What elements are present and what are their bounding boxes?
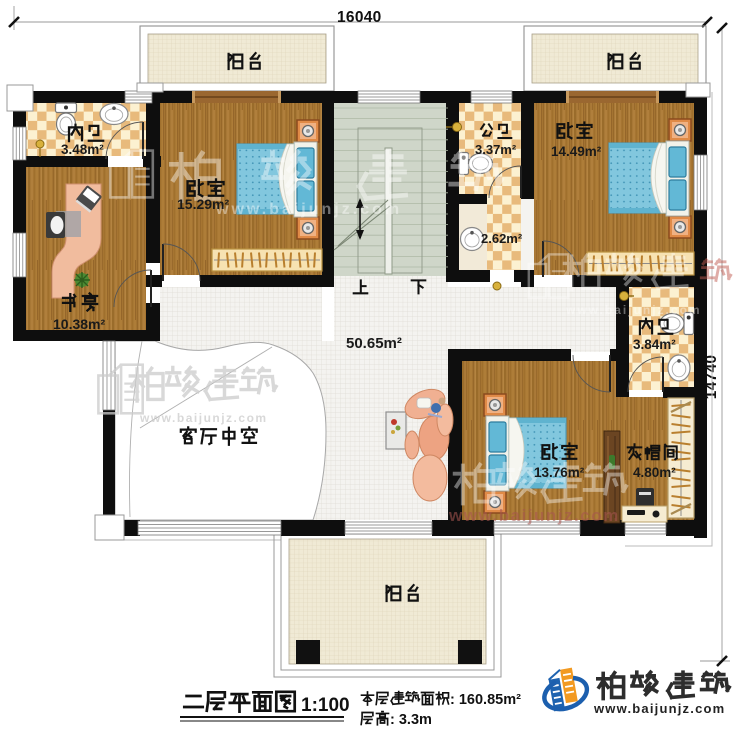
svg-text:2.62m²: 2.62m² (481, 231, 523, 246)
svg-text:: 160.85m²: : 160.85m² (450, 692, 521, 708)
svg-text:www.baijunjz.com: www.baijunjz.com (593, 701, 725, 716)
svg-text:1:100: 1:100 (301, 695, 350, 716)
svg-text:: 3.3m: : 3.3m (390, 712, 432, 728)
svg-text:13.76m²: 13.76m² (534, 465, 585, 480)
svg-text:www.baijunjz.com: www.baijunjz.com (215, 201, 402, 218)
svg-text:3.48m²: 3.48m² (61, 142, 104, 157)
svg-text:16040: 16040 (337, 9, 382, 26)
svg-text:www.baijunjz.com: www.baijunjz.com (565, 303, 702, 317)
svg-text:www.baijunjz.com: www.baijunjz.com (139, 411, 268, 425)
svg-text:50.65m²: 50.65m² (346, 335, 402, 352)
svg-text:www.baijunjz.com: www.baijunjz.com (448, 506, 620, 525)
svg-text:3.84m²: 3.84m² (633, 337, 676, 352)
svg-text:3.37m²: 3.37m² (475, 142, 517, 157)
svg-text:4.80m²: 4.80m² (633, 465, 676, 480)
svg-text:14.49m²: 14.49m² (551, 144, 602, 159)
svg-text:15.29m²: 15.29m² (177, 196, 229, 212)
svg-text:10.38m²: 10.38m² (53, 316, 105, 332)
